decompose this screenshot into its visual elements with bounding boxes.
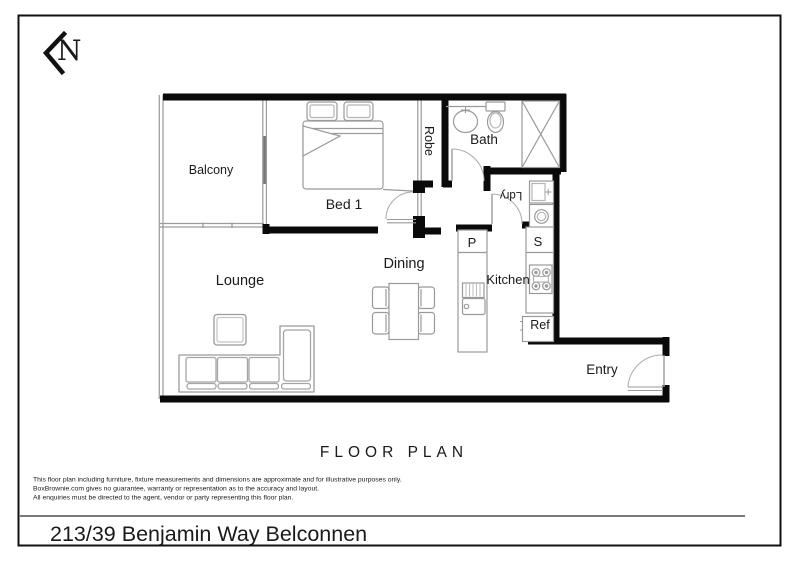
north-arrow-letter: N	[57, 34, 82, 67]
pillow-left-inner	[310, 105, 334, 118]
toilet-cistern	[486, 102, 505, 111]
bed1-door-swing-arc	[386, 192, 413, 219]
pillow-right-inner	[347, 105, 370, 118]
sofa-front-strip-3	[250, 384, 279, 390]
basin-tap-icon	[461, 107, 470, 113]
shower-cross-lines	[522, 101, 560, 168]
address-title: 213/39 Benjamin Way Belconnen	[50, 522, 367, 546]
north-arrow: N	[46, 34, 82, 72]
cooktop-control-strip	[534, 277, 549, 283]
room-label-dining: Dining	[383, 256, 424, 272]
toilet-bowl-inner	[490, 113, 501, 128]
room-label-lounge: Lounge	[216, 273, 264, 289]
sink-tap-icon	[464, 304, 468, 308]
laundry-fixtures	[530, 181, 554, 228]
sofa-front-strip-4	[282, 384, 311, 390]
burner-3-dot	[535, 285, 537, 287]
room-label-bath: Bath	[470, 132, 498, 147]
disclaimer-line-2: BoxBrownie.com gives no guarantee, warra…	[33, 486, 319, 493]
bath-door-swing-arc	[452, 149, 484, 181]
burner-2-dot	[545, 271, 547, 273]
label-fridge: Ref	[530, 318, 550, 332]
bath-door	[452, 149, 484, 181]
laundry-tub-inner	[532, 184, 545, 201]
room-label-balcony: Balcony	[189, 163, 234, 177]
room-label-laundry: Ldry	[500, 189, 523, 201]
sofa-cushion-1	[186, 358, 216, 383]
sofa-front-strip-1	[187, 384, 216, 390]
entry-door-swing-arc	[628, 355, 663, 387]
room-label-entry: Entry	[586, 362, 618, 377]
washing-machine-door-inner	[537, 212, 545, 220]
entry-door	[628, 355, 664, 391]
room-label-kitchen: Kitchen	[486, 272, 529, 287]
bed-furniture	[303, 102, 383, 189]
room-label-robe: Robe	[422, 126, 436, 156]
lounge-furniture	[179, 315, 314, 393]
disclaimer-line-1: This floor plan including furniture, fix…	[33, 477, 402, 484]
floor-plan-page: N	[0, 0, 800, 566]
coffee-table-inner	[217, 318, 243, 343]
bathroom-fixtures	[446, 101, 560, 168]
dining-table	[389, 284, 419, 340]
burner-4-dot	[545, 285, 547, 287]
room-label-bed1: Bed 1	[326, 196, 363, 212]
sofa-cushion-2	[218, 358, 248, 383]
bed1-door	[383, 190, 416, 223]
chaise-cushion	[284, 330, 311, 381]
disclaimer: This floor plan including furniture, fix…	[33, 477, 402, 502]
dining-furniture	[373, 284, 435, 340]
plan-title: FLOOR PLAN	[320, 444, 468, 461]
sofa-front-strip-2	[218, 384, 247, 390]
floor-plan-drawing: N	[0, 0, 800, 566]
label-store: S	[534, 234, 543, 249]
basin	[454, 111, 478, 133]
disclaimer-line-3: All enquiries must be directed to the ag…	[33, 495, 293, 502]
sofa-cushion-3	[249, 358, 279, 383]
bed1-door-leaf	[383, 190, 413, 192]
label-pantry: P	[468, 235, 477, 250]
burner-1-dot	[535, 271, 537, 273]
